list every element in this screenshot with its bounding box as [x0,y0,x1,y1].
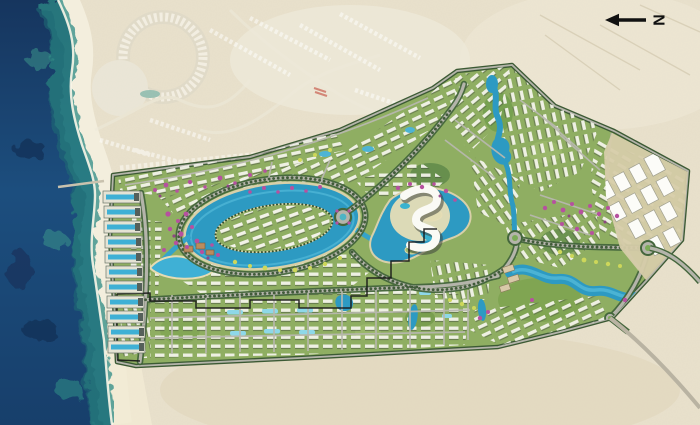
north-label: N [650,14,667,26]
master-plan-screenshot: N [0,0,700,425]
marina-row [103,191,145,353]
roundabout [508,231,522,245]
roundabout [335,209,351,225]
map-canvas: N [0,0,700,425]
existing-pool [140,90,160,98]
